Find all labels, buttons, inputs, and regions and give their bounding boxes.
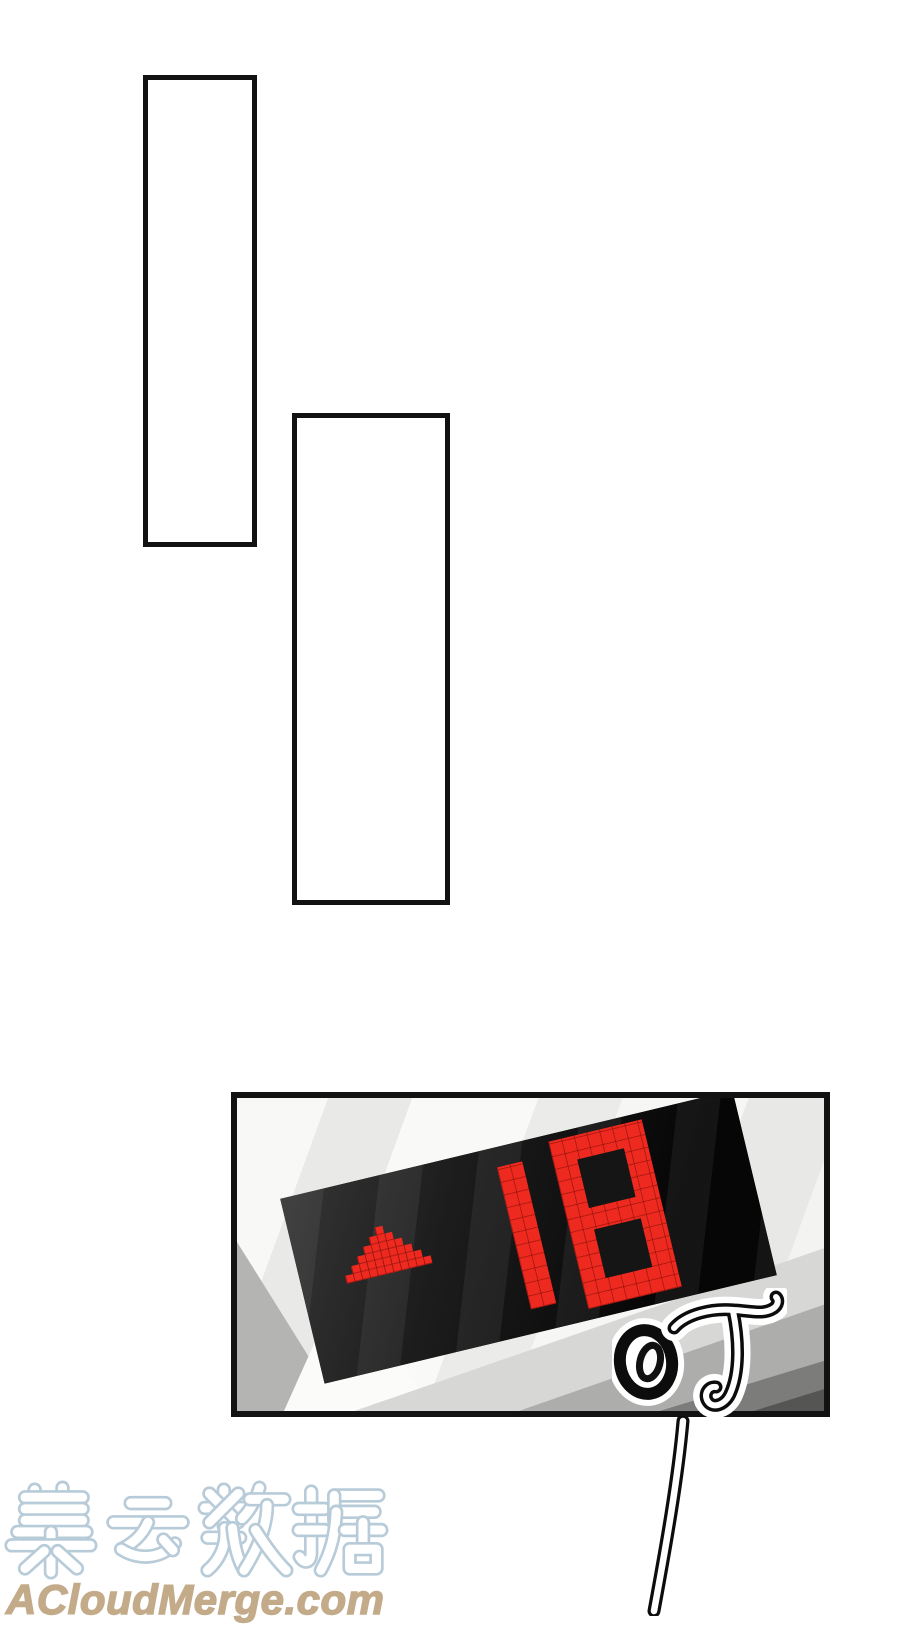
empty-panel-2 <box>292 413 450 905</box>
floor-digit-1 <box>497 1161 556 1309</box>
digit-8-upper-window <box>577 1148 635 1208</box>
wm-char-ju <box>299 1492 382 1571</box>
up-arrow-icon <box>336 1216 433 1283</box>
watermark-url: ACloudMerge.com <box>6 1576 385 1624</box>
floor-value-text: 18 <box>280 1199 281 1200</box>
sfx-ding <box>612 1288 787 1428</box>
digit-8-lower-window <box>594 1218 652 1278</box>
motion-line <box>638 1416 698 1616</box>
comic-page: 18 叮 <box>0 0 900 1633</box>
watermark-brand-cn <box>2 1480 394 1588</box>
wm-char-ji <box>12 1488 91 1572</box>
floor-digit-8 <box>548 1119 682 1309</box>
sfx-text: 叮 <box>0 0 1 1</box>
watermark-brand-text: 集云数据 <box>0 0 1 1</box>
wm-char-yun <box>113 1503 182 1556</box>
motion-line-stroke <box>654 1421 683 1611</box>
empty-panel-1 <box>143 75 257 547</box>
wm-char-shu <box>205 1488 287 1571</box>
